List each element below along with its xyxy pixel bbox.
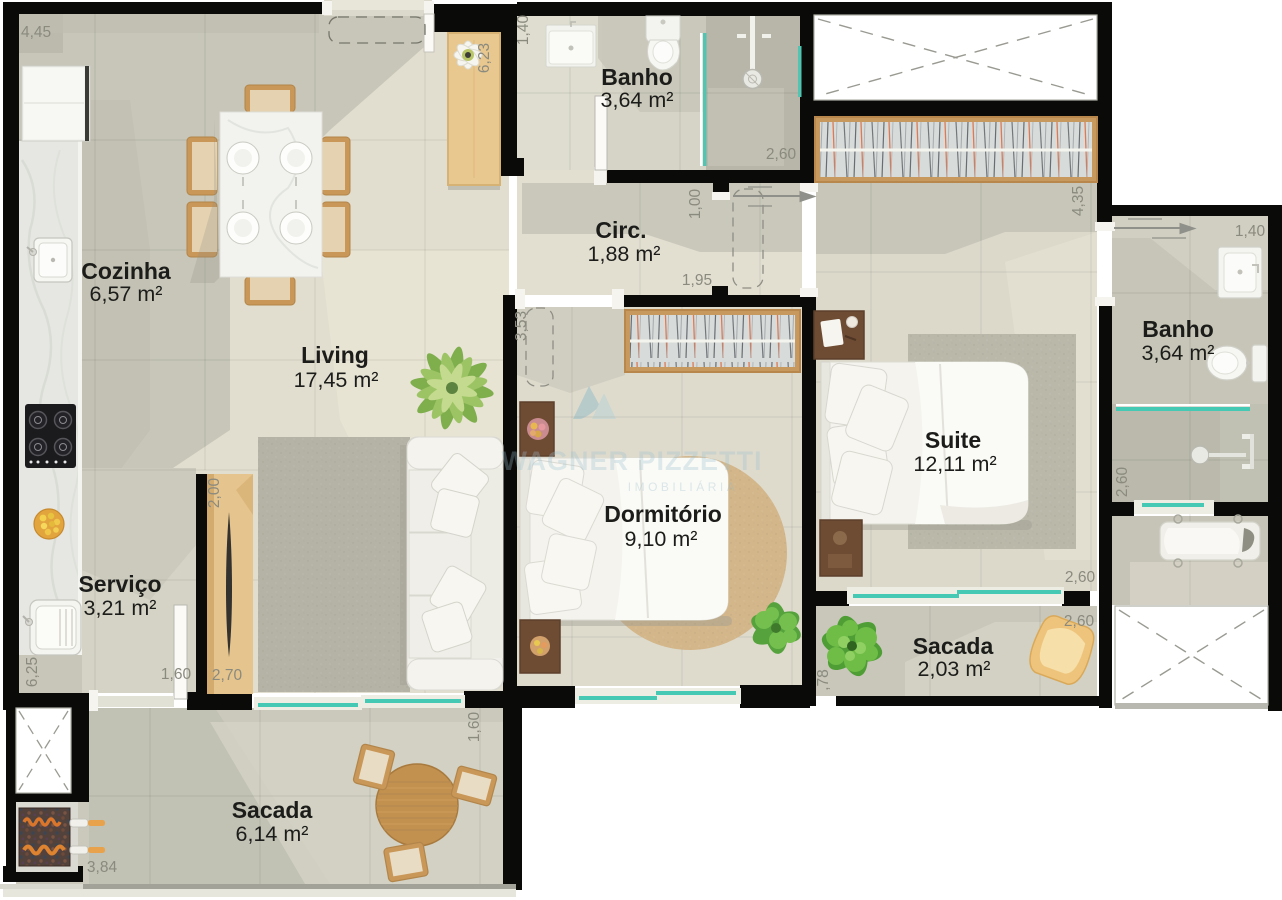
svg-text:2,60: 2,60 [766, 146, 797, 163]
svg-text:4,45: 4,45 [21, 24, 51, 41]
svg-text:2,60: 2,60 [1064, 613, 1095, 630]
svg-text:Sacada: Sacada [913, 633, 994, 659]
svg-text:Circ.: Circ. [595, 217, 646, 243]
svg-text:2,03 m²: 2,03 m² [918, 657, 991, 681]
svg-text:Sacada: Sacada [232, 797, 313, 823]
svg-text:2,60: 2,60 [1114, 467, 1131, 498]
svg-text:3,64 m²: 3,64 m² [601, 88, 674, 112]
svg-text:1,40: 1,40 [1235, 223, 1266, 240]
svg-text:6,23: 6,23 [476, 43, 493, 73]
svg-text:1,00: 1,00 [687, 189, 704, 220]
svg-text:2,70: 2,70 [212, 667, 243, 684]
svg-text:1,88 m²: 1,88 m² [588, 242, 661, 266]
svg-text:2,60: 2,60 [1065, 569, 1096, 586]
svg-text:IMOBILIÁRIA: IMOBILIÁRIA [628, 479, 739, 494]
svg-text:6,57 m²: 6,57 m² [90, 282, 163, 306]
svg-text:Serviço: Serviço [78, 571, 161, 597]
svg-text:1,40: 1,40 [515, 15, 532, 46]
svg-text:,78: ,78 [815, 669, 832, 691]
svg-text:Living: Living [301, 342, 369, 368]
svg-text:17,45 m²: 17,45 m² [294, 368, 379, 392]
svg-text:Suite: Suite [925, 427, 981, 453]
svg-text:12,11 m²: 12,11 m² [913, 452, 996, 476]
svg-text:WAGNER PIZZETTI: WAGNER PIZZETTI [502, 446, 763, 476]
svg-text:3,53: 3,53 [513, 311, 530, 341]
svg-text:Banho: Banho [601, 64, 673, 90]
svg-text:Dormitório: Dormitório [604, 501, 722, 527]
svg-text:Cozinha: Cozinha [81, 258, 171, 284]
svg-text:1,60: 1,60 [466, 712, 483, 743]
svg-text:1,60: 1,60 [161, 666, 192, 683]
svg-text:3,64 m²: 3,64 m² [1142, 341, 1215, 365]
svg-text:1,95: 1,95 [682, 272, 712, 289]
svg-text:6,14 m²: 6,14 m² [236, 822, 309, 846]
svg-text:9,10 m²: 9,10 m² [625, 527, 698, 551]
svg-text:3,21 m²: 3,21 m² [84, 596, 157, 620]
svg-text:6,25: 6,25 [24, 657, 41, 687]
svg-text:Banho: Banho [1142, 316, 1214, 342]
svg-text:4,35: 4,35 [1070, 186, 1087, 216]
svg-text:2,00: 2,00 [206, 478, 223, 509]
svg-text:3,84: 3,84 [87, 859, 118, 876]
